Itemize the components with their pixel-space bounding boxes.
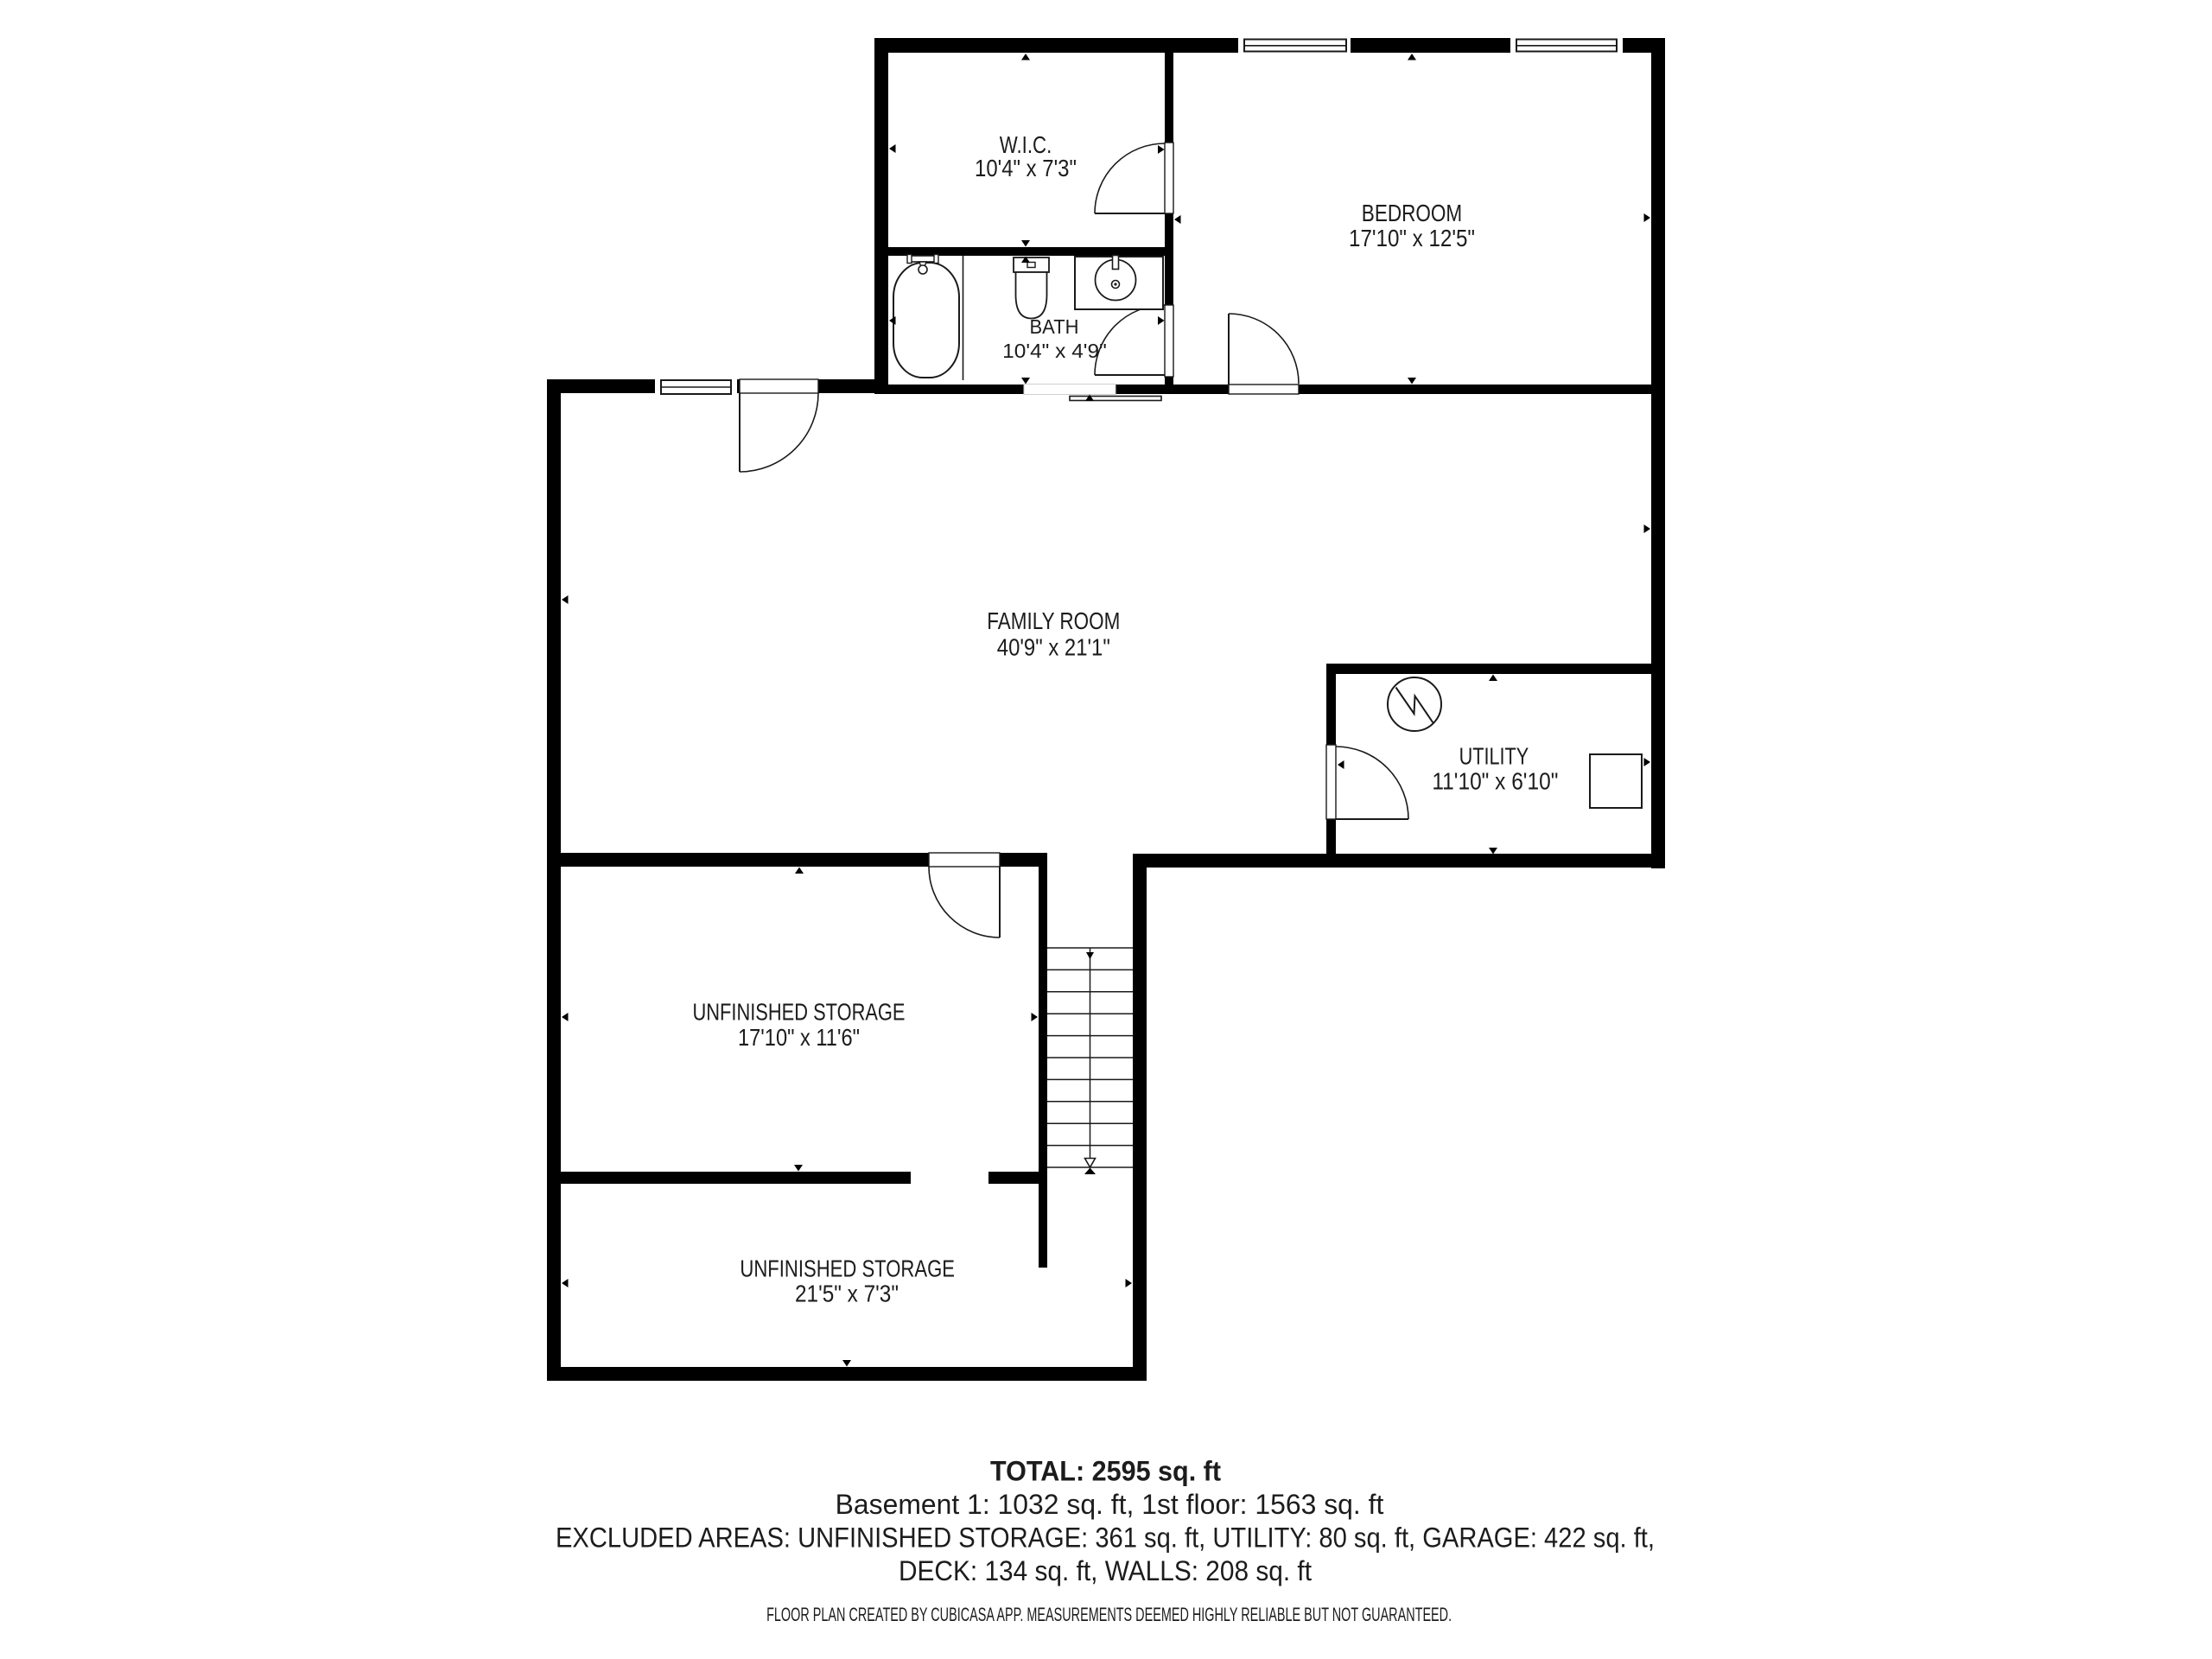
svg-text:BEDROOM: BEDROOM	[1362, 200, 1462, 226]
svg-text:EXCLUDED AREAS: UNFINISHED STO: EXCLUDED AREAS: UNFINISHED STORAGE: 361 …	[556, 1522, 1655, 1554]
svg-text:40'9" x 21'1": 40'9" x 21'1"	[997, 634, 1110, 661]
svg-text:11'10" x 6'10": 11'10" x 6'10"	[1432, 768, 1558, 795]
svg-text:10'4" x 4'9": 10'4" x 4'9"	[1002, 340, 1107, 362]
svg-text:17'10" x 12'5": 17'10" x 12'5"	[1349, 225, 1475, 251]
svg-text:UNFINISHED STORAGE: UNFINISHED STORAGE	[693, 999, 906, 1026]
svg-text:TOTAL: 2595 sq. ft: TOTAL: 2595 sq. ft	[990, 1456, 1221, 1487]
svg-text:21'5" x 7'3": 21'5" x 7'3"	[795, 1281, 899, 1307]
svg-text:Basement 1: 1032 sq. ft, 1st f: Basement 1: 1032 sq. ft, 1st floor: 1563…	[836, 1489, 1384, 1520]
svg-text:FLOOR PLAN CREATED BY CUBICASA: FLOOR PLAN CREATED BY CUBICASA APP. MEAS…	[766, 1604, 1452, 1625]
svg-text:BATH: BATH	[1030, 315, 1079, 338]
svg-text:FAMILY ROOM: FAMILY ROOM	[987, 607, 1120, 634]
svg-text:17'10" x 11'6": 17'10" x 11'6"	[738, 1024, 860, 1051]
svg-text:UTILITY: UTILITY	[1459, 742, 1529, 769]
svg-text:DECK: 134 sq. ft, WALLS: 208 s: DECK: 134 sq. ft, WALLS: 208 sq. ft	[899, 1555, 1312, 1586]
svg-text:UNFINISHED STORAGE: UNFINISHED STORAGE	[740, 1255, 955, 1282]
svg-text:10'4" x 7'3": 10'4" x 7'3"	[975, 155, 1077, 181]
